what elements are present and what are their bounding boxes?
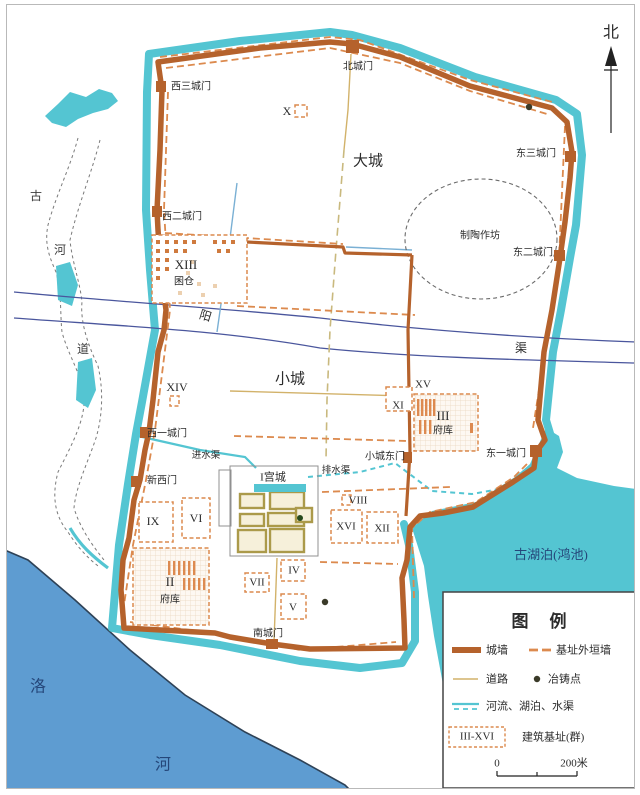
site-label-vii: VII <box>249 577 265 589</box>
site-map: 大城 小城 I宫城 制陶作坊 北城门 西三城门 西二城门 西一城门 新西门 东三… <box>0 0 640 795</box>
site-label-xi: XI <box>392 400 404 412</box>
region-label-pottery: 制陶作坊 <box>460 228 500 241</box>
gate-label-west3: 西三城门 <box>171 79 211 92</box>
site-label-x: X <box>283 104 292 118</box>
site-label-xvi: XVI <box>336 521 356 533</box>
site-label-ix: IX <box>147 514 160 528</box>
north-arrow-icon <box>605 46 617 66</box>
site-label-xii: XII <box>374 523 390 535</box>
gate-label-east1: 东一城门 <box>486 446 526 459</box>
legend-sites-range: III-XVI <box>460 731 495 743</box>
site-label-v: V <box>289 602 297 614</box>
luo-river-char-luo: 洛 <box>30 678 46 696</box>
site-label-xv: XV <box>415 379 431 391</box>
site-label-iv: IV <box>288 565 300 577</box>
legend-sites-label: 建筑基址(群) <box>522 730 585 744</box>
old-river-char-he: 河 <box>54 243 66 257</box>
map-canvas: 大城 小城 I宫城 制陶作坊 北城门 西三城门 西二城门 西一城门 新西门 东三… <box>0 0 640 795</box>
legend: 图 例 城墙 基址外垣墙 道路 冶铸点 河流、湖泊、水渠 III-XVI 建筑基… <box>443 592 637 788</box>
legend-casting-label: 冶铸点 <box>548 672 581 686</box>
luo-river-char-he: 河 <box>155 756 171 774</box>
region-label-dacheng: 大城 <box>353 152 383 169</box>
gate-label-new-west: 新西门 <box>147 473 177 486</box>
palace-casting-dot <box>297 515 303 521</box>
site-name-fuku3: 府库 <box>433 423 453 436</box>
old-river-course <box>45 89 118 568</box>
site-name-fuku2: 府库 <box>160 592 180 605</box>
gate-label-west2: 西二城门 <box>162 209 202 222</box>
channel-label-inlet: 进水渠 <box>192 449 221 461</box>
site-label-viii: VIII <box>349 495 368 507</box>
gate-label-west1: 西一城门 <box>147 426 187 439</box>
site-label-xiii: XIII <box>175 257 197 272</box>
xiaocheng-east-wall <box>406 255 412 516</box>
palace-pool <box>254 484 306 492</box>
legend-wall-swatch <box>452 647 481 653</box>
site-label-ii: II <box>166 574 175 589</box>
scale-start: 0 <box>494 758 500 770</box>
site-label-vi: VI <box>190 511 203 525</box>
legend-water-label: 河流、湖泊、水渠 <box>486 699 574 713</box>
compass: 北 <box>603 24 619 133</box>
old-river-char-dao: 道 <box>77 342 89 356</box>
legend-foundation-label: 基址外垣墙 <box>556 643 611 657</box>
site-label-iii: III <box>437 408 450 423</box>
region-label-gongcheng: I宫城 <box>260 470 286 484</box>
legend-wall-label: 城墙 <box>486 643 508 657</box>
site-name-quncang: 囷仓 <box>174 274 194 287</box>
gate-label-east3: 东三城门 <box>516 146 556 159</box>
canal-label-yang: 阳 <box>198 307 214 324</box>
region-label-xiaocheng: 小城 <box>275 370 305 387</box>
lake-label: 古湖泊(鸿池) <box>514 547 588 562</box>
gate-label-north: 北城门 <box>343 59 373 72</box>
gate-label-east2: 东二城门 <box>513 245 553 258</box>
legend-casting-swatch <box>534 676 540 682</box>
old-river-char-gu: 古 <box>30 188 42 203</box>
channel-label-drain: 排水渠 <box>322 464 351 476</box>
gate-label-south: 南城门 <box>253 626 283 639</box>
north-label: 北 <box>603 24 619 42</box>
legend-title: 图 例 <box>512 611 569 631</box>
gate-label-xiaocheng-east: 小城东门 <box>365 449 405 462</box>
site-label-xiv: XIV <box>166 380 188 394</box>
canal-label-qu: 渠 <box>515 341 527 355</box>
legend-road-label: 道路 <box>486 672 508 686</box>
scale-end: 200米 <box>560 757 588 770</box>
